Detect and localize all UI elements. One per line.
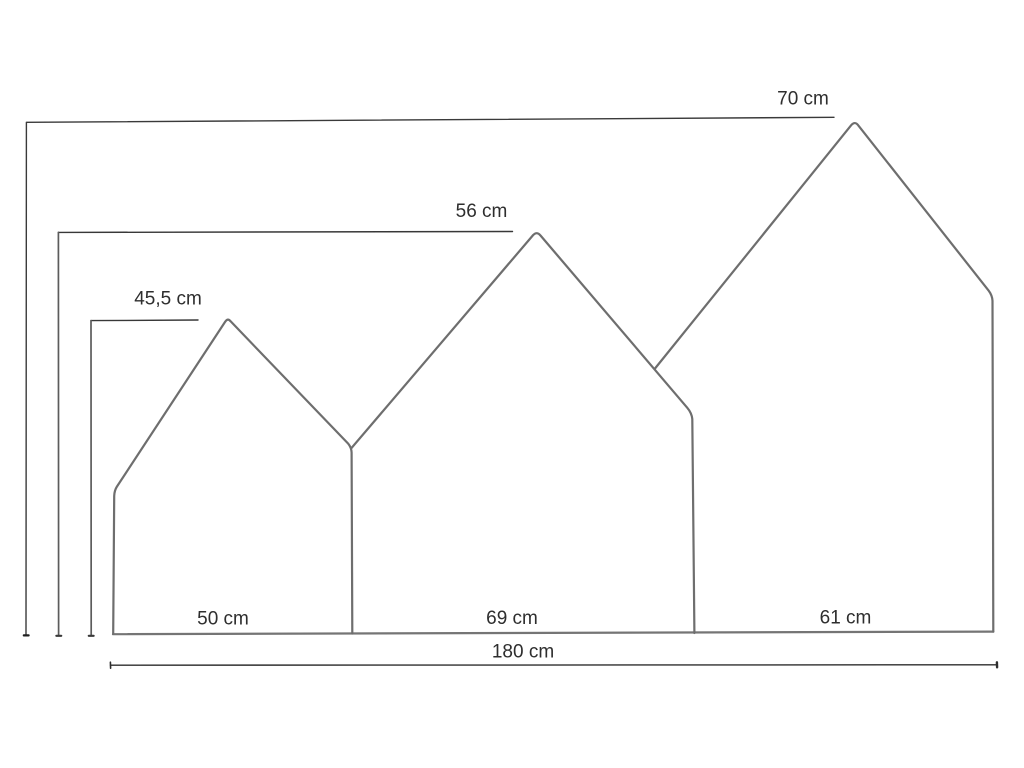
svg-text:61 cm: 61 cm [820, 608, 872, 629]
svg-text:180 cm: 180 cm [492, 642, 554, 663]
svg-text:69 cm: 69 cm [486, 608, 538, 629]
svg-text:45,5 cm: 45,5 cm [134, 289, 202, 310]
svg-text:50 cm: 50 cm [197, 609, 249, 630]
svg-text:56 cm: 56 cm [456, 201, 508, 222]
svg-text:70 cm: 70 cm [777, 89, 829, 110]
